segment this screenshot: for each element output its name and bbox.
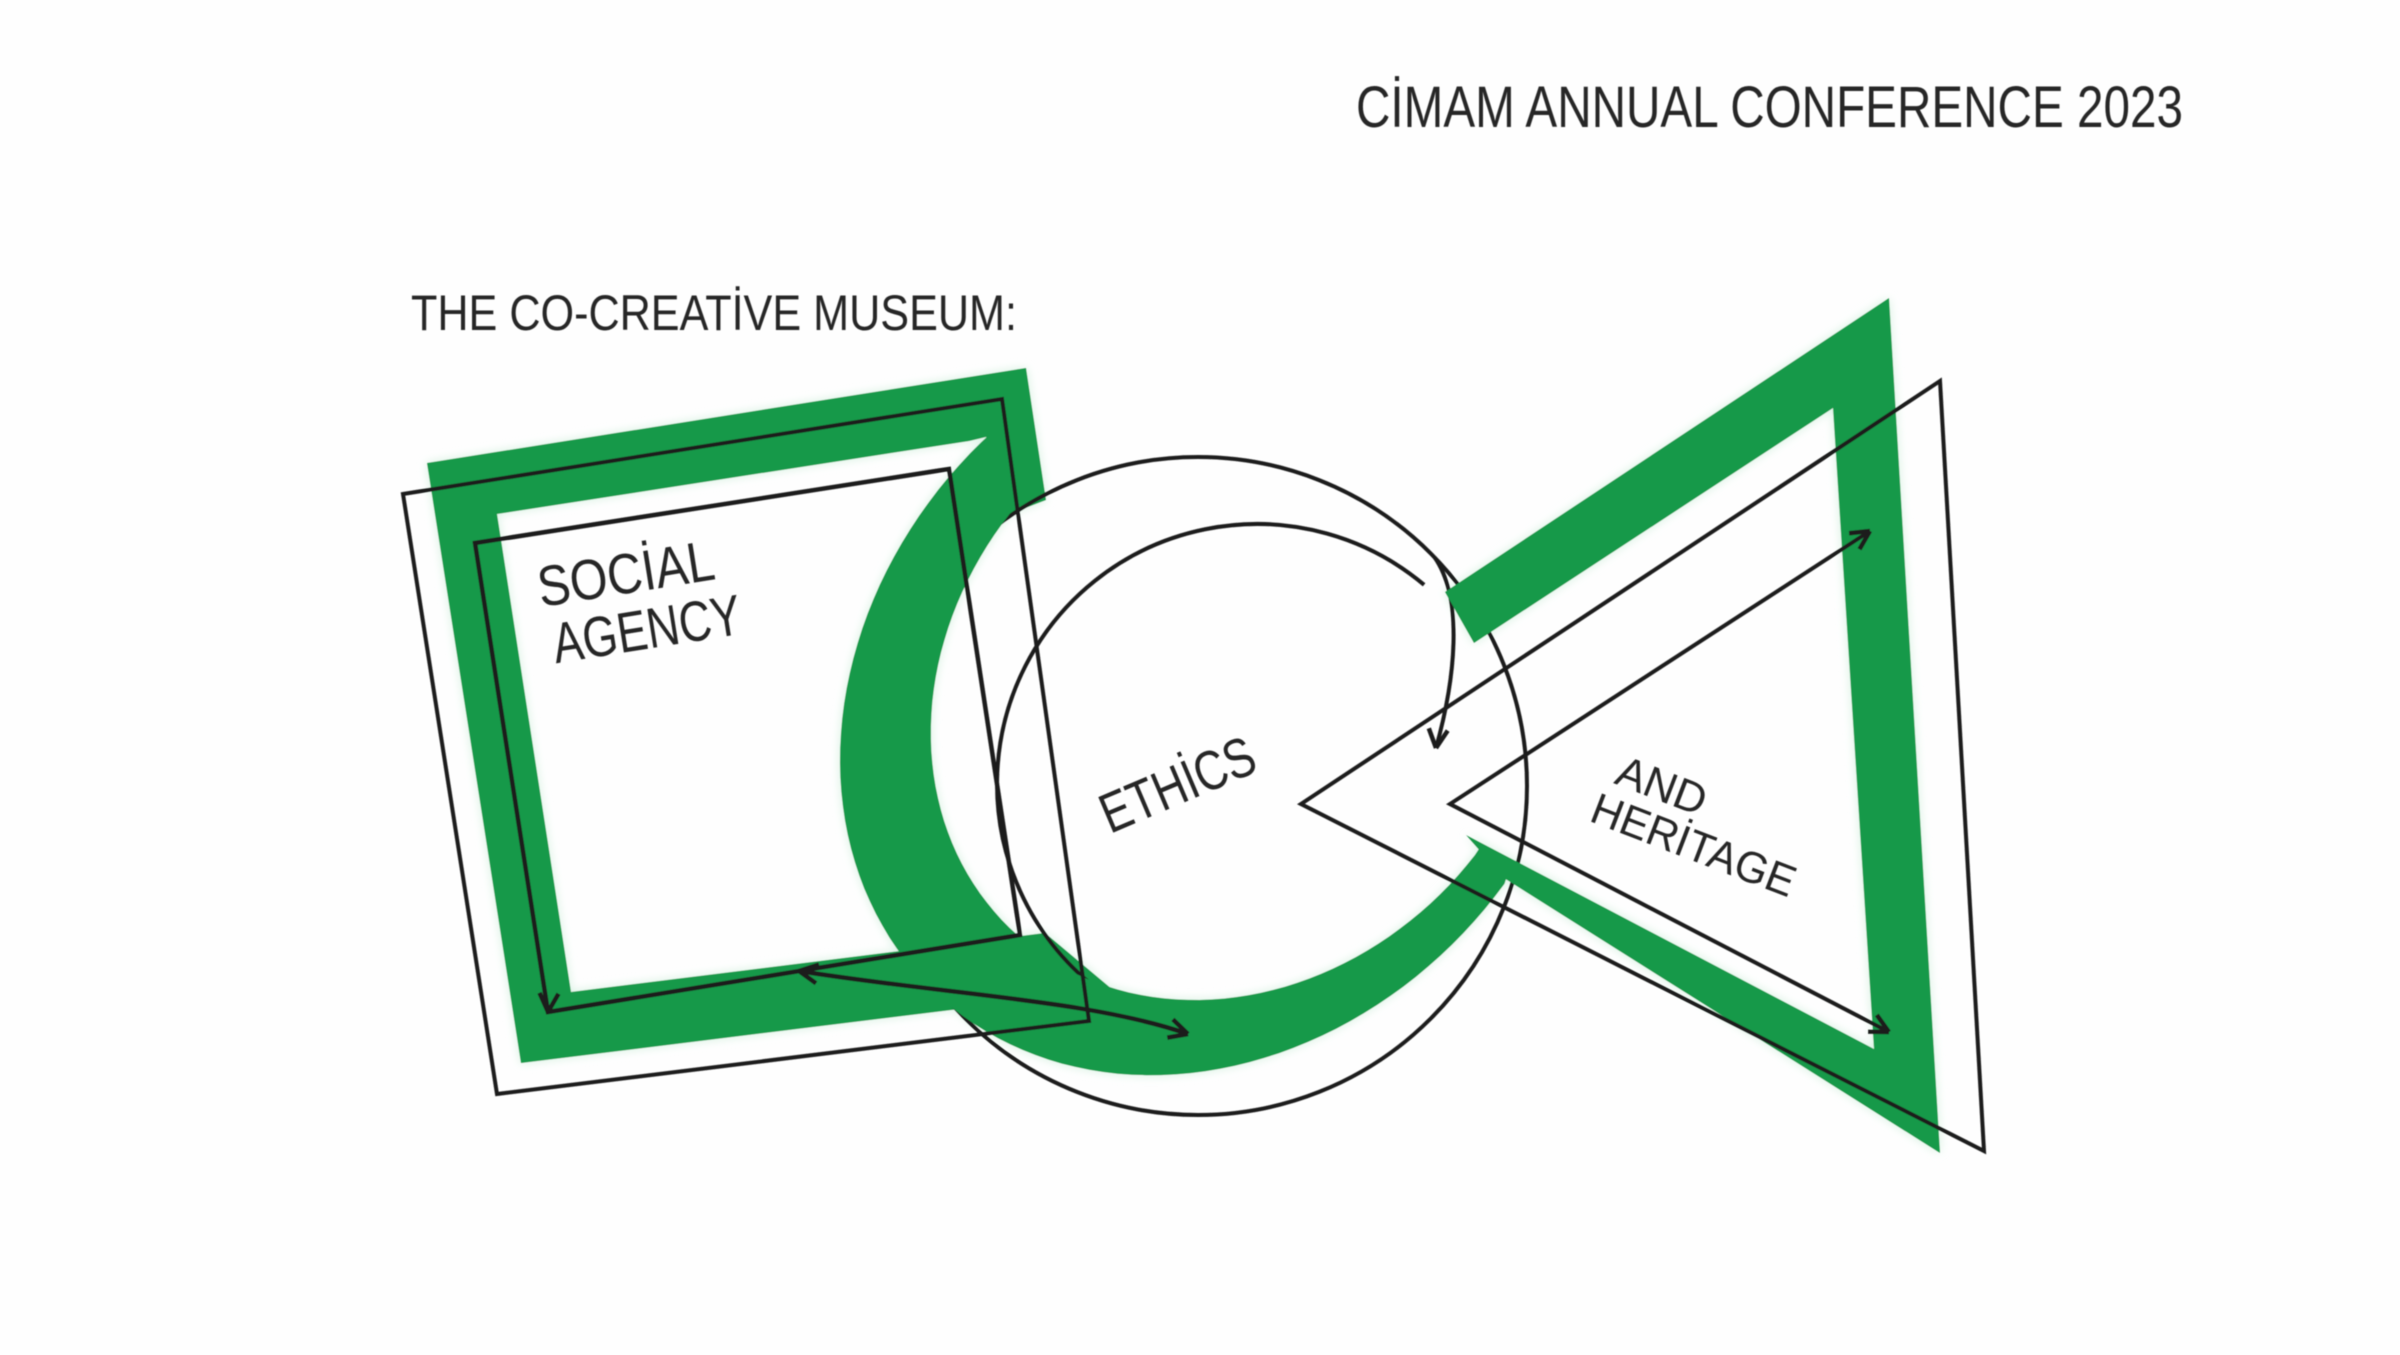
svg-text:THE CO-CREATİVE MUSEUM:: THE CO-CREATİVE MUSEUM: bbox=[411, 285, 1017, 341]
svg-text:CİMAM ANNUAL CONFERENCE 2023: CİMAM ANNUAL CONFERENCE 2023 bbox=[1356, 75, 2183, 140]
